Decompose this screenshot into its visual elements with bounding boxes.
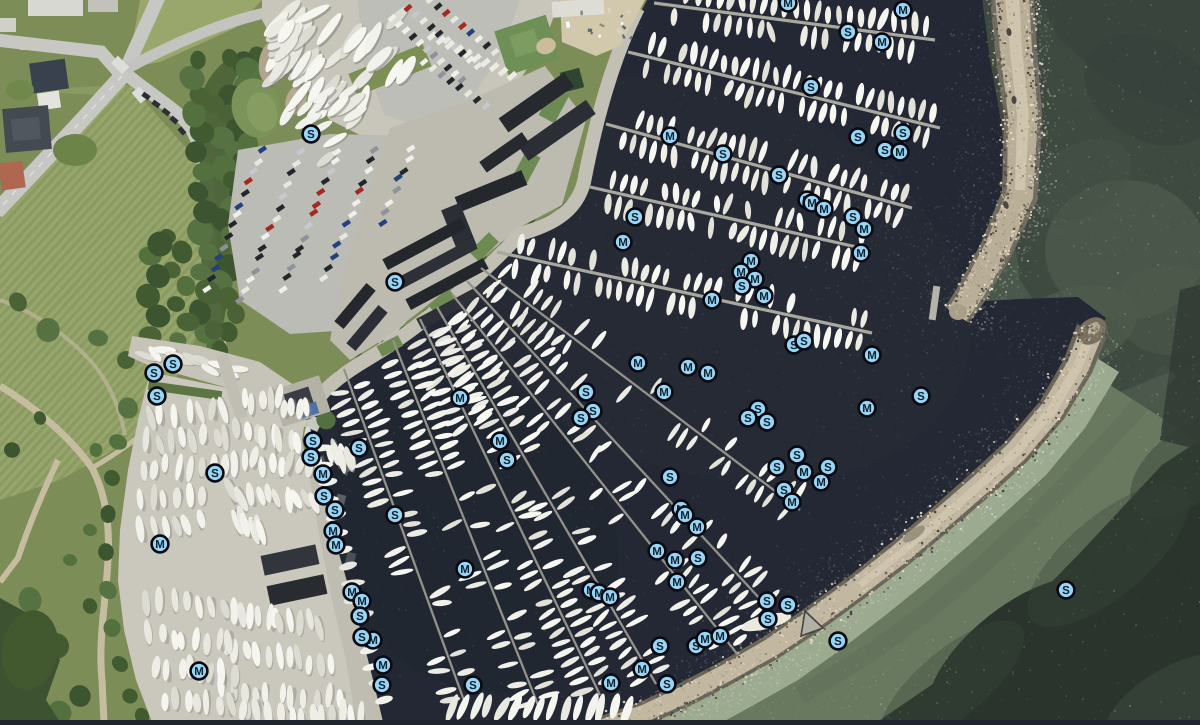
svg-text:S: S bbox=[356, 611, 364, 623]
svg-text:S: S bbox=[834, 636, 842, 648]
svg-text:M: M bbox=[877, 37, 887, 49]
svg-text:M: M bbox=[898, 5, 908, 17]
svg-text:M: M bbox=[670, 555, 680, 567]
svg-text:M: M bbox=[633, 358, 643, 370]
svg-text:M: M bbox=[665, 131, 675, 143]
svg-text:M: M bbox=[895, 147, 905, 159]
svg-text:M: M bbox=[700, 634, 710, 646]
svg-text:S: S bbox=[358, 632, 366, 644]
svg-text:S: S bbox=[211, 468, 219, 480]
svg-text:S: S bbox=[391, 277, 399, 289]
svg-text:S: S bbox=[738, 281, 746, 293]
svg-text:S: S bbox=[793, 450, 801, 462]
svg-text:S: S bbox=[663, 679, 671, 691]
svg-text:S: S bbox=[1062, 585, 1070, 597]
svg-text:M: M bbox=[683, 362, 693, 374]
svg-text:M: M bbox=[652, 546, 662, 558]
svg-text:M: M bbox=[155, 539, 165, 551]
svg-text:S: S bbox=[854, 132, 862, 144]
svg-text:S: S bbox=[824, 462, 832, 474]
svg-text:S: S bbox=[503, 455, 511, 467]
svg-text:M: M bbox=[357, 596, 367, 608]
svg-text:M: M bbox=[495, 436, 505, 448]
svg-text:M: M bbox=[194, 666, 204, 678]
svg-text:S: S bbox=[469, 680, 477, 692]
svg-text:S: S bbox=[784, 600, 792, 612]
svg-text:M: M bbox=[331, 540, 341, 552]
svg-text:S: S bbox=[307, 129, 315, 141]
svg-text:M: M bbox=[672, 577, 682, 589]
svg-text:M: M bbox=[378, 660, 388, 672]
svg-text:M: M bbox=[606, 678, 616, 690]
svg-text:S: S bbox=[378, 680, 386, 692]
svg-text:M: M bbox=[867, 350, 877, 362]
svg-text:S: S bbox=[775, 170, 783, 182]
svg-text:S: S bbox=[849, 212, 857, 224]
svg-text:M: M bbox=[856, 248, 866, 260]
svg-text:M: M bbox=[783, 0, 793, 10]
svg-text:S: S bbox=[391, 510, 399, 522]
svg-text:M: M bbox=[680, 510, 690, 522]
svg-text:S: S bbox=[666, 472, 674, 484]
svg-text:S: S bbox=[899, 128, 907, 140]
svg-text:S: S bbox=[631, 212, 639, 224]
svg-text:M: M bbox=[692, 522, 702, 534]
svg-text:M: M bbox=[318, 469, 328, 481]
svg-text:S: S bbox=[763, 417, 771, 429]
svg-text:S: S bbox=[764, 614, 772, 626]
svg-text:M: M bbox=[759, 291, 769, 303]
svg-text:M: M bbox=[460, 564, 470, 576]
svg-text:S: S bbox=[763, 596, 771, 608]
svg-text:S: S bbox=[694, 553, 702, 565]
svg-text:M: M bbox=[715, 631, 725, 643]
svg-text:S: S bbox=[656, 641, 664, 653]
svg-text:S: S bbox=[309, 436, 317, 448]
svg-text:M: M bbox=[862, 403, 872, 415]
svg-text:M: M bbox=[703, 368, 713, 380]
svg-text:M: M bbox=[659, 387, 669, 399]
svg-text:S: S bbox=[744, 413, 752, 425]
svg-text:S: S bbox=[719, 149, 727, 161]
svg-text:S: S bbox=[582, 387, 590, 399]
svg-text:S: S bbox=[331, 505, 339, 517]
svg-text:M: M bbox=[816, 477, 826, 489]
svg-text:S: S bbox=[881, 145, 889, 157]
svg-text:M: M bbox=[605, 592, 615, 604]
svg-text:M: M bbox=[819, 204, 829, 216]
svg-text:S: S bbox=[577, 413, 585, 425]
svg-text:S: S bbox=[150, 368, 158, 380]
svg-text:M: M bbox=[859, 224, 869, 236]
svg-text:M: M bbox=[799, 467, 809, 479]
svg-text:M: M bbox=[750, 274, 760, 286]
svg-text:M: M bbox=[618, 237, 628, 249]
svg-text:M: M bbox=[787, 497, 797, 509]
svg-text:S: S bbox=[307, 452, 315, 464]
svg-text:M: M bbox=[455, 393, 465, 405]
svg-text:S: S bbox=[844, 27, 852, 39]
svg-text:S: S bbox=[917, 391, 925, 403]
svg-text:M: M bbox=[637, 664, 647, 676]
svg-text:S: S bbox=[153, 391, 161, 403]
svg-text:M: M bbox=[707, 295, 717, 307]
svg-text:S: S bbox=[169, 359, 177, 371]
svg-text:S: S bbox=[807, 82, 815, 94]
svg-text:S: S bbox=[355, 443, 363, 455]
svg-text:S: S bbox=[800, 336, 808, 348]
svg-text:S: S bbox=[773, 462, 781, 474]
svg-text:S: S bbox=[320, 491, 328, 503]
